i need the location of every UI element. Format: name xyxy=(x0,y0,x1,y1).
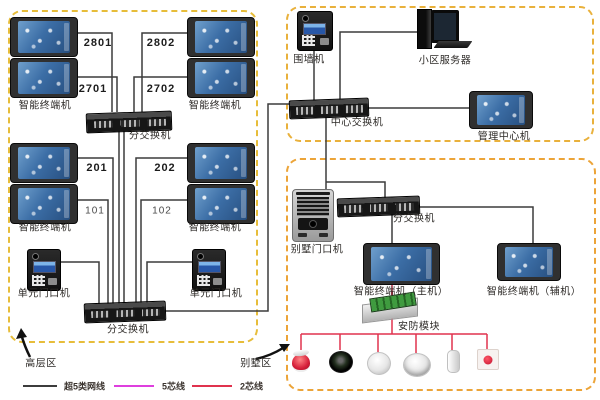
panic-button-icon xyxy=(477,349,499,370)
unit-door-station-label: 单元门口机 xyxy=(190,285,243,300)
villa-aux-terminal xyxy=(497,243,561,281)
terminal-label: 智能终端机 xyxy=(19,219,72,234)
villa-master-terminal-label: 智能终端机（主机） xyxy=(354,283,449,298)
terminal-201 xyxy=(10,143,78,183)
terminal-screen xyxy=(18,188,70,220)
management-terminal-label: 管理中心机 xyxy=(478,128,531,143)
door-screen xyxy=(198,261,221,273)
terminal-label: 智能终端机 xyxy=(189,219,242,234)
terminal-2801 xyxy=(10,17,78,57)
terminal-screen xyxy=(18,147,70,179)
alarm-siren-icon xyxy=(291,350,311,371)
terminal-screen xyxy=(18,21,70,53)
legend-cat5e-line xyxy=(23,385,57,387)
distribution-switch-bottom-label: 分交换机 xyxy=(107,321,149,336)
gas-detector-icon xyxy=(329,351,353,373)
call-button xyxy=(319,233,328,237)
speaker-grille-icon xyxy=(297,197,329,216)
server-label: 小区服务器 xyxy=(419,52,472,67)
legend-2core-label: 2芯线 xyxy=(240,380,263,393)
unit-number-102: 102 xyxy=(152,206,172,217)
terminal-label: 智能终端机 xyxy=(19,97,72,112)
network-topology-diagram: 智能终端机 智能终端机 2801 2802 2701 2702 分交换机 智能终… xyxy=(0,0,600,400)
terminal-2701 xyxy=(10,58,78,98)
unit-number-2801: 2801 xyxy=(84,37,112,49)
door-contact-icon xyxy=(447,350,460,373)
terminal-screen xyxy=(195,62,247,94)
unit-number-201: 201 xyxy=(86,162,107,174)
keypad-icon xyxy=(302,35,315,46)
villa-aux-terminal-label: 智能终端机（辅机） xyxy=(487,283,582,298)
terminal-screen xyxy=(18,62,70,94)
villa-distribution-switch-label: 分交换机 xyxy=(393,210,435,225)
camera-icon xyxy=(197,253,204,260)
unit-number-202: 202 xyxy=(154,162,175,174)
terminal-label: 智能终端机 xyxy=(189,97,242,112)
door-screen xyxy=(33,261,56,273)
cat5e-cables xyxy=(57,32,533,311)
legend-5core-line xyxy=(114,385,154,387)
terminal-screen xyxy=(195,188,247,220)
server-tower xyxy=(417,9,432,49)
villa-door-station xyxy=(292,189,334,242)
security-module-label: 安防模块 xyxy=(398,318,440,333)
camera-icon xyxy=(302,15,309,22)
unit-number-2702: 2702 xyxy=(147,83,175,95)
unit-number-2701: 2701 xyxy=(79,83,107,95)
server-monitor xyxy=(431,10,459,43)
wall-station xyxy=(297,11,333,51)
siren-dome xyxy=(292,354,310,372)
villa-zone-label: 别墅区 xyxy=(240,355,272,370)
legend-5core-label: 5芯线 xyxy=(162,380,185,393)
management-terminal xyxy=(469,91,533,129)
terminal-2702 xyxy=(187,58,255,98)
center-switch-label: 中心交换机 xyxy=(331,114,384,129)
unit-door-station-label: 单元门口机 xyxy=(18,285,71,300)
villa-door-top xyxy=(296,192,330,195)
unit-number-2802: 2802 xyxy=(147,37,175,49)
terminal-202 xyxy=(187,143,255,183)
highrise-zone-label: 高层区 xyxy=(25,355,57,370)
wall-station-label: 围墙机 xyxy=(293,51,325,66)
legend-2core-line xyxy=(192,385,232,387)
distribution-switch-top-label: 分交换机 xyxy=(129,127,171,142)
heat-detector-icon xyxy=(403,353,431,377)
terminal-screen xyxy=(505,247,553,277)
villa-door-station-label: 别墅门口机 xyxy=(291,241,344,256)
smoke-detector-icon xyxy=(367,352,391,375)
call-button xyxy=(298,233,307,237)
door-screen xyxy=(303,23,326,35)
terminal-screen xyxy=(371,247,432,281)
villa-master-terminal xyxy=(363,243,440,285)
server-keyboard xyxy=(434,41,473,48)
terminal-screen xyxy=(195,21,247,53)
terminal-screen xyxy=(195,147,247,179)
legend-cat5e-label: 超5类网线 xyxy=(64,380,105,393)
camera-icon xyxy=(298,218,328,230)
speaker-icon xyxy=(320,38,329,45)
unit-number-101: 101 xyxy=(85,206,105,217)
terminal-screen xyxy=(477,95,525,125)
camera-icon xyxy=(32,253,39,260)
terminal-2802 xyxy=(187,17,255,57)
switch-ports xyxy=(91,309,160,319)
